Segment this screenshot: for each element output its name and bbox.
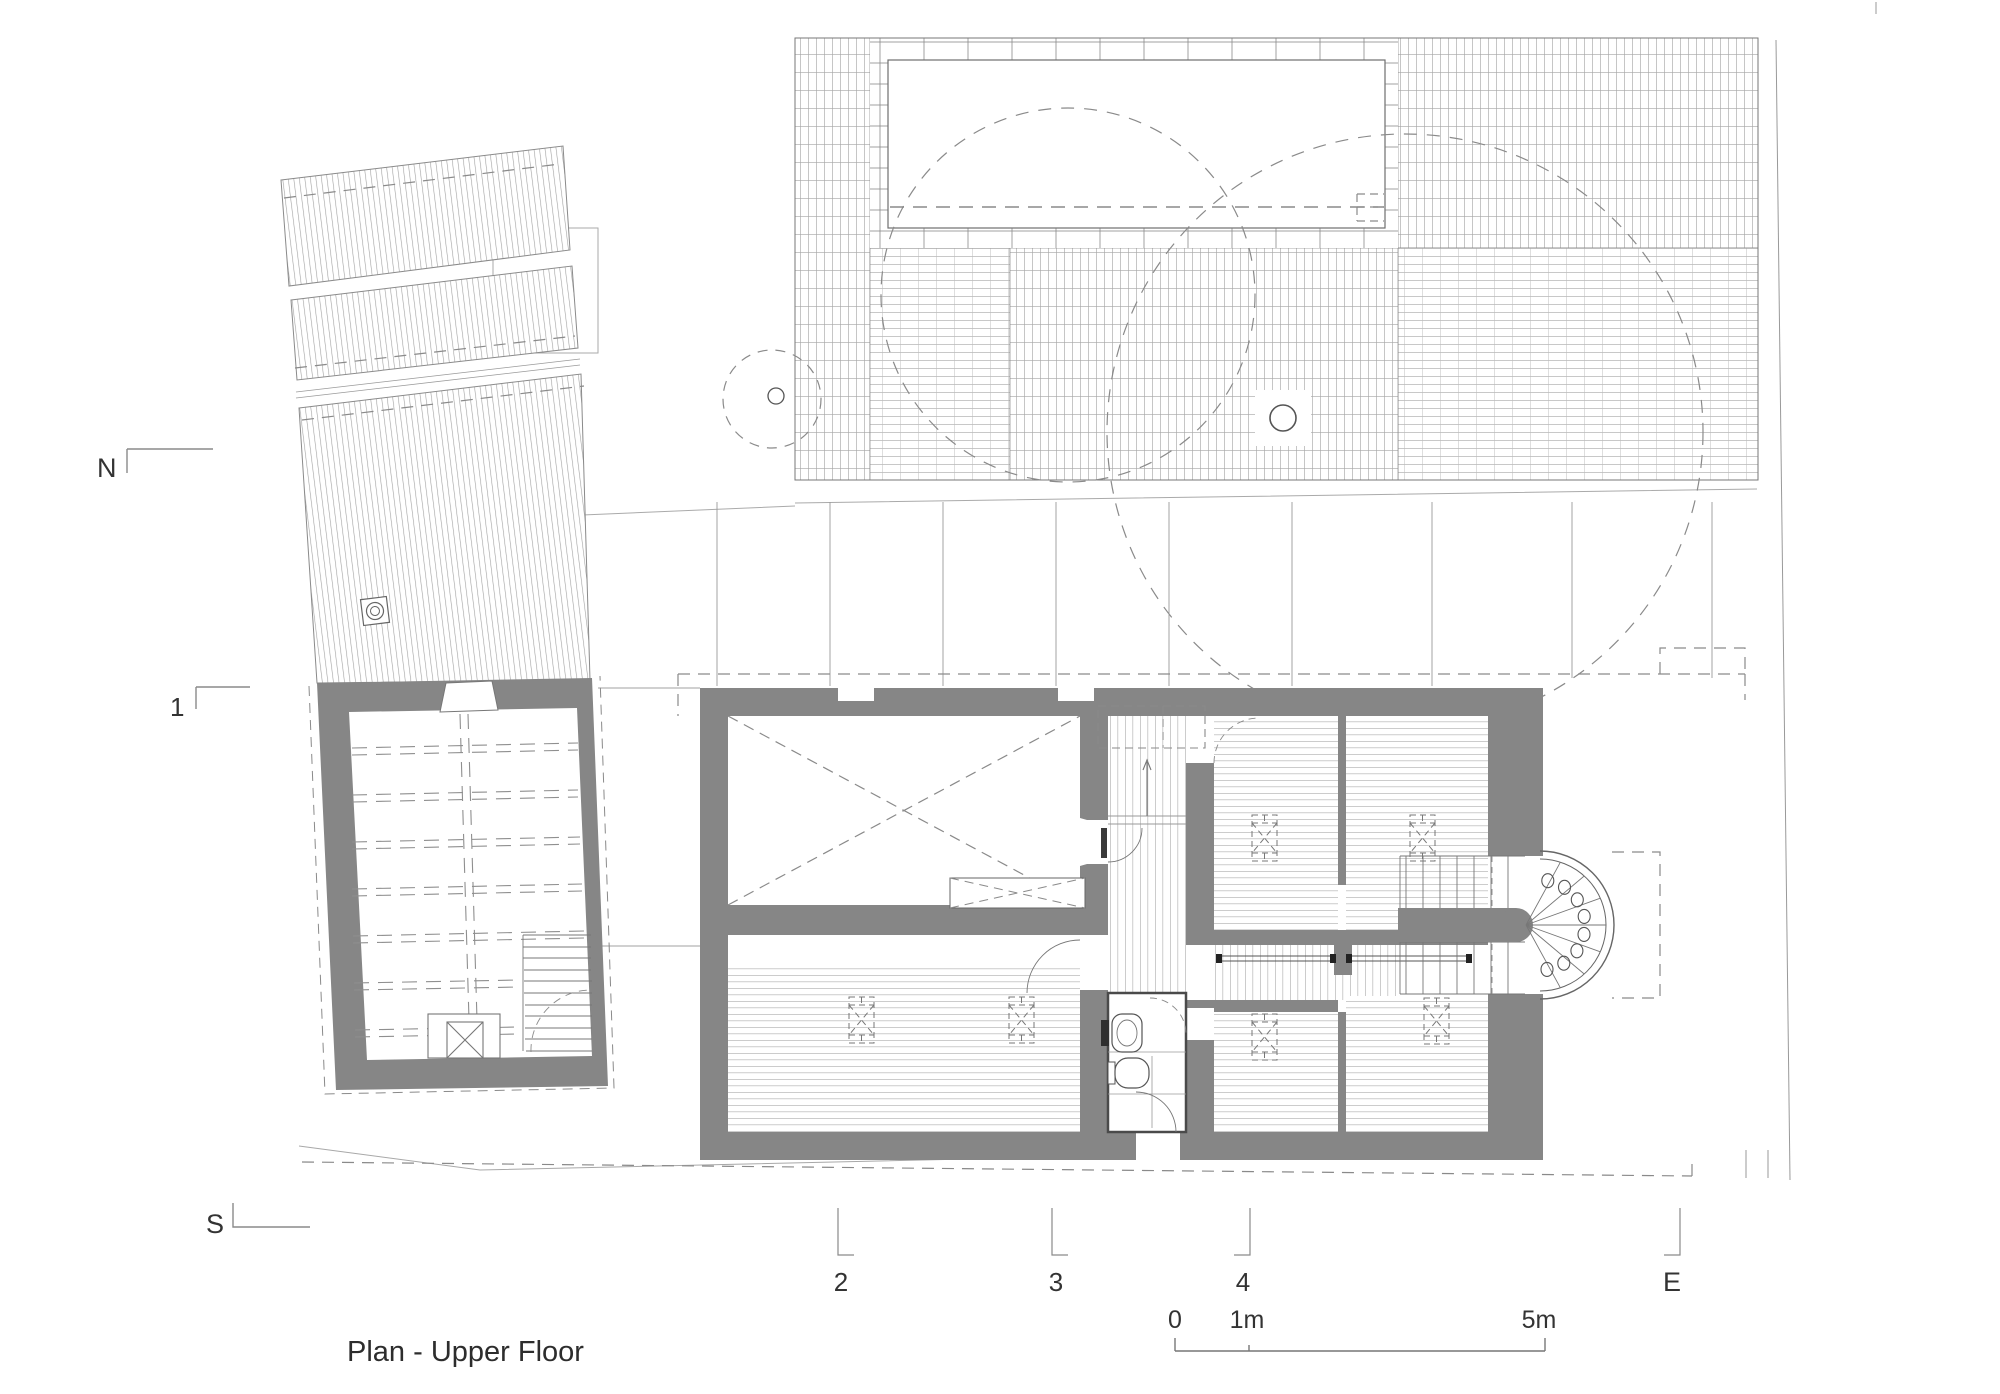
- label-south: S: [206, 1209, 224, 1239]
- glazing-cap: [1466, 954, 1472, 963]
- east-tick: [1664, 1208, 1680, 1255]
- wall-corridor-left-lower: [1080, 990, 1108, 1132]
- label-axis-3: 3: [1049, 1267, 1063, 1297]
- roof-terrace-opening: [888, 60, 1385, 228]
- scale-bar-line: [1175, 1338, 1545, 1351]
- rafter-pair: [353, 931, 584, 943]
- main-roof: [795, 38, 1758, 480]
- terrace-mullions: [717, 502, 1712, 686]
- toilet-bowl: [1115, 1058, 1149, 1088]
- roof-area-below-terrace: [1010, 248, 1398, 480]
- corridor-east-strip-floor: [1214, 945, 1400, 1000]
- door-gap-bed-ne1: [1186, 718, 1214, 763]
- room-bedroom-se1-floor: [1214, 1012, 1338, 1132]
- glazing-cap: [1346, 954, 1352, 963]
- hole-icon: [1571, 893, 1583, 907]
- scale-bar: 0 1m 5m: [1168, 1306, 1556, 1351]
- gap-connect-lines: [598, 688, 700, 946]
- wall-mid-band: [700, 905, 1108, 935]
- wall-se1-top-band: [1214, 1000, 1338, 1012]
- barn-top-chimney-notch: [440, 681, 498, 712]
- roof-area-below-terrace-left: [870, 248, 1010, 480]
- mullion-lines: [717, 502, 1712, 686]
- barn-rooflight: [361, 597, 390, 626]
- wall-top: [700, 688, 1543, 716]
- roof-area-right-lower: [1398, 248, 1758, 480]
- axis-4-tick: [1234, 1208, 1250, 1255]
- site-right-double-lines: [1746, 1150, 1768, 1178]
- room-bedroom-sw-floor: [728, 965, 1098, 1132]
- glazing-cap: [1330, 954, 1336, 963]
- closet-box: [950, 878, 1085, 908]
- barn-roof-block-b: [291, 266, 578, 380]
- rooflight-frame: [361, 597, 390, 626]
- north-tick: [127, 449, 213, 473]
- overhang-apse-step: [1612, 852, 1660, 998]
- label-north: N: [97, 453, 117, 483]
- glazing-cap: [1216, 954, 1222, 963]
- site-right-boundary-line: [1776, 40, 1790, 1180]
- hole-icon: [1558, 956, 1570, 970]
- door-gap-bath-bottom: [1136, 1132, 1180, 1160]
- wall-bottom: [700, 1132, 1543, 1160]
- tap-icon: [1101, 1020, 1109, 1046]
- scale-label-0: 0: [1168, 1306, 1182, 1334]
- roof-chimney-icon: [1270, 405, 1296, 431]
- barn-roof-block-c: [299, 374, 590, 683]
- hole-icon: [1578, 927, 1590, 941]
- door-leaf-void: [1101, 828, 1107, 858]
- terrace-border-left: [870, 60, 888, 228]
- scale-label-5m: 5m: [1522, 1306, 1557, 1334]
- terrace-border-right: [1385, 60, 1398, 228]
- door-gap-partition-ne: [1338, 885, 1346, 930]
- niche-corridor-right: [1186, 1008, 1214, 1040]
- label-axis-1: 1: [170, 692, 184, 722]
- tree-trunk-icon: [768, 388, 784, 404]
- hole-icon: [1578, 909, 1590, 923]
- rafter-pair: [352, 884, 582, 896]
- barn-stair: [523, 935, 592, 1052]
- rafter-pair: [352, 790, 578, 802]
- room-bedroom-se2-floor: [1346, 996, 1488, 1132]
- toilet-cistern: [1108, 1062, 1115, 1084]
- wall-corridor-right-c: [1186, 1040, 1214, 1132]
- barn-stair-walkline: [531, 990, 591, 1052]
- label-axis-2: 2: [834, 1267, 848, 1297]
- label-axis-4: 4: [1236, 1267, 1250, 1297]
- terrace-border-top: [870, 38, 1398, 60]
- south-tick: [233, 1203, 310, 1227]
- window-notch-2: [1058, 688, 1094, 701]
- opening-corridor-strip: [1186, 945, 1214, 1000]
- bathroom: [1101, 993, 1186, 1132]
- label-east: E: [1663, 1267, 1681, 1297]
- floor-plan-page: N 1 S 2 3 4 E 0 1m 5m Plan - Upper Floor: [0, 0, 2000, 1394]
- roof-band-left: [795, 38, 870, 480]
- wall-corridor-right-b: [1186, 1000, 1214, 1008]
- barn-rafters-dashed: [352, 714, 584, 1054]
- wall-se-partition: [1338, 1012, 1346, 1132]
- door-gap-bedroom-sw: [1080, 938, 1108, 990]
- barn-chimney: [428, 1014, 500, 1058]
- ridge-dashed-pair: [460, 714, 478, 1054]
- scale-label-1m: 1m: [1230, 1306, 1265, 1334]
- barn-roof-block-a: [281, 146, 570, 286]
- roof-area-right-upper: [1398, 38, 1758, 248]
- stair-spine-wall: [1398, 908, 1516, 942]
- overhang-ne-step: [1660, 648, 1745, 674]
- main-building: [302, 648, 1745, 1176]
- wall-void-right-a: [1080, 716, 1108, 820]
- rafter-pair: [354, 980, 520, 990]
- hole-icon: [1541, 962, 1553, 976]
- wall-right-upper: [1488, 716, 1543, 856]
- floor-plan-drawing: N 1 S 2 3 4 E 0 1m 5m Plan - Upper Floor: [0, 0, 2000, 1394]
- rafter-pair: [352, 743, 578, 755]
- room-bedroom-ne2-floor: [1346, 716, 1488, 930]
- wall-ne-partition: [1338, 716, 1346, 885]
- hole-icon: [1571, 944, 1583, 958]
- axis-1-tick: [196, 687, 250, 709]
- rafter-pair: [352, 837, 580, 849]
- page-title: Plan - Upper Floor: [347, 1336, 584, 1368]
- terrace-border-bottom: [870, 228, 1398, 248]
- terrace-edge-lines: [487, 489, 1757, 519]
- wall-corridor-right-a: [1186, 763, 1214, 945]
- axis-3-tick: [1052, 1208, 1068, 1255]
- window-notch-1: [838, 688, 874, 701]
- lower-flight-treads: [1406, 942, 1508, 994]
- wall-right-lower: [1488, 994, 1543, 1132]
- left-building: [281, 146, 614, 1094]
- axis-2-tick: [838, 1208, 854, 1255]
